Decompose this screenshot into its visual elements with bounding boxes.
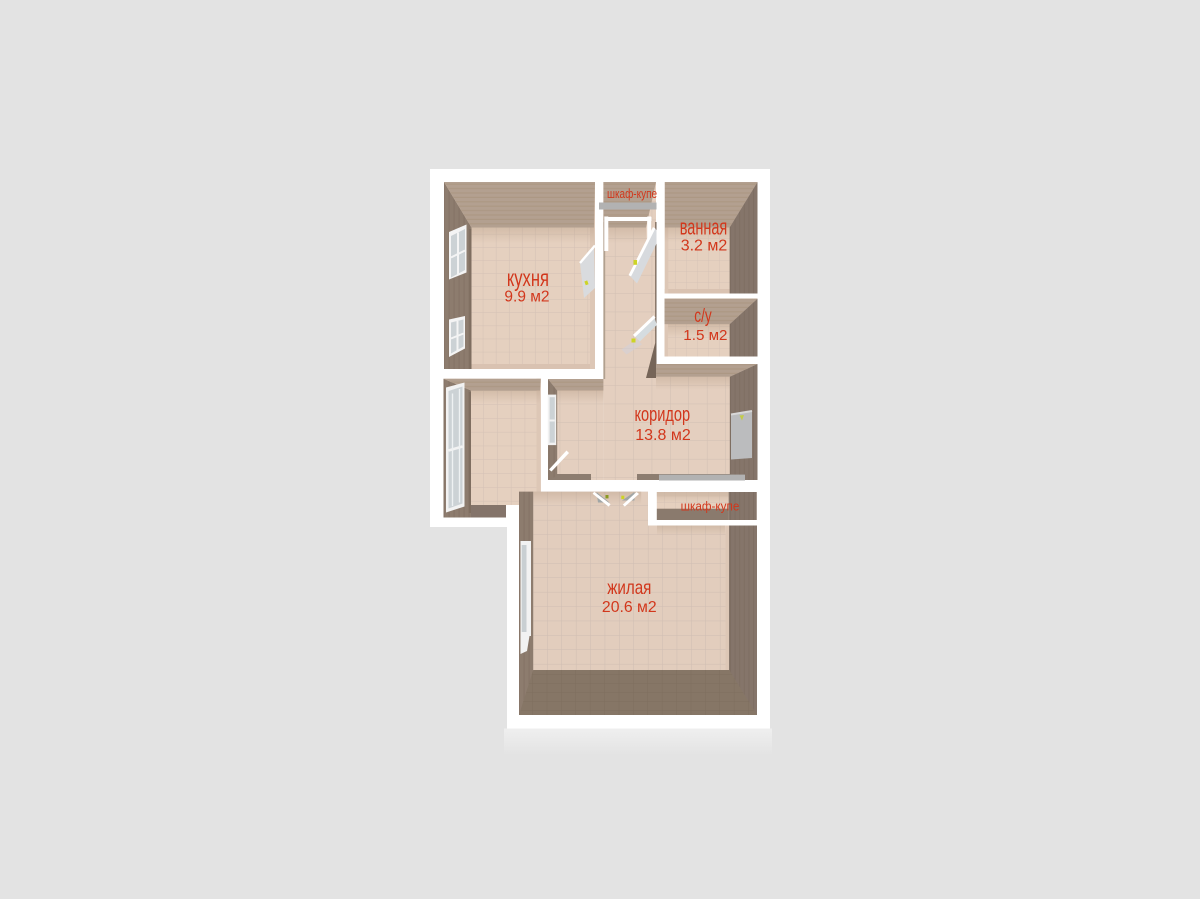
svg-text:1.5 м2: 1.5 м2 — [683, 327, 727, 344]
svg-text:3.2 м2: 3.2 м2 — [681, 238, 728, 255]
svg-text:9.9 м2: 9.9 м2 — [504, 289, 549, 306]
svg-text:с/у: с/у — [694, 305, 712, 327]
svg-text:шкаф-купе: шкаф-купе — [607, 188, 657, 201]
svg-text:ванная: ванная — [680, 215, 728, 240]
svg-text:шкаф-купе: шкаф-купе — [681, 499, 740, 514]
svg-text:жилая: жилая — [607, 576, 651, 598]
svg-text:20.6 м2: 20.6 м2 — [602, 599, 657, 616]
svg-text:13.8 м2: 13.8 м2 — [635, 427, 691, 444]
svg-text:коридор: коридор — [634, 403, 690, 426]
